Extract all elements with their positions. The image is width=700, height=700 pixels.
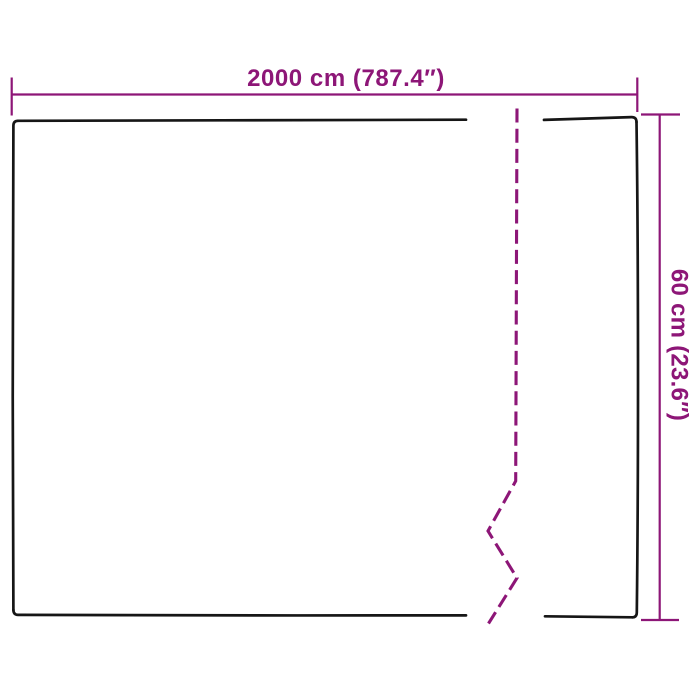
svg-text:60 cm (23.6″): 60 cm (23.6″): [666, 269, 693, 421]
svg-text:2000 cm (787.4″): 2000 cm (787.4″): [247, 65, 445, 92]
